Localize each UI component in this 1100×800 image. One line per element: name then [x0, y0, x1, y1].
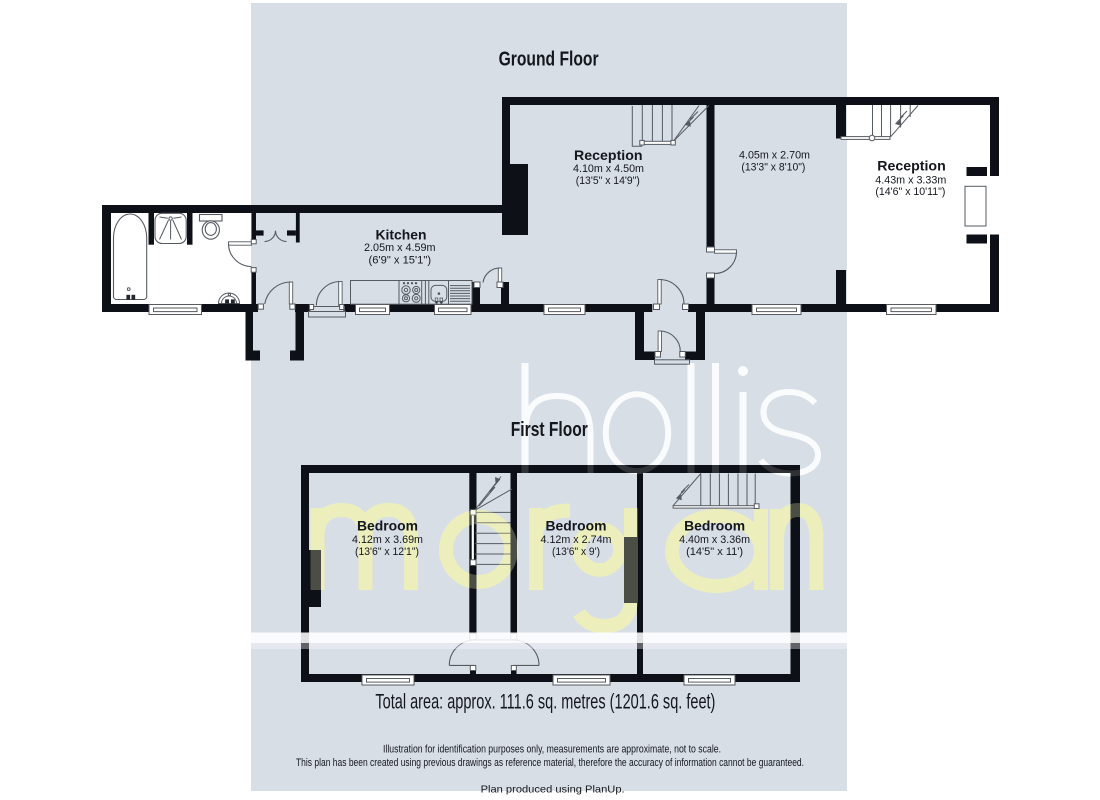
svg-text:Bedroom: Bedroom — [546, 518, 607, 534]
svg-text:(13'6" x 9'): (13'6" x 9') — [552, 546, 600, 558]
svg-text:4.43m x 3.33m: 4.43m x 3.33m — [875, 174, 946, 186]
svg-text:4.05m x 2.70m: 4.05m x 2.70m — [739, 150, 810, 162]
svg-text:(6'9" x 15'1"): (6'9" x 15'1") — [369, 255, 432, 267]
svg-text:4.12m x 3.69m: 4.12m x 3.69m — [352, 534, 423, 546]
svg-text:2.05m x 4.59m: 2.05m x 4.59m — [364, 242, 436, 254]
svg-text:(13'6" x 12'1"): (13'6" x 12'1") — [355, 546, 419, 558]
svg-text:4.10m x 4.50m: 4.10m x 4.50m — [573, 163, 644, 175]
svg-text:Reception: Reception — [574, 147, 643, 163]
svg-text:Bedroom: Bedroom — [684, 518, 745, 534]
svg-text:This plan has been created usi: This plan has been created using previou… — [296, 757, 804, 769]
svg-text:Total area: approx. 111.6 sq.: Total area: approx. 111.6 sq. metres (12… — [375, 691, 715, 714]
svg-text:(14'5" x 11'): (14'5" x 11') — [686, 546, 743, 558]
svg-text:Plan produced using PlanUp.: Plan produced using PlanUp. — [481, 784, 625, 796]
svg-text:4.12m x 2.74m: 4.12m x 2.74m — [541, 534, 612, 546]
svg-text:4.40m x 3.36m: 4.40m x 3.36m — [679, 534, 750, 546]
svg-text:(13'3" x 8'10"): (13'3" x 8'10") — [741, 162, 805, 174]
svg-text:Reception: Reception — [877, 158, 946, 174]
svg-text:Illustration for identificatio: Illustration for identification purposes… — [383, 744, 721, 756]
svg-text:(14'6" x 10'11"): (14'6" x 10'11") — [875, 186, 945, 198]
svg-text:First Floor: First Floor — [511, 419, 588, 441]
svg-text:Ground Floor: Ground Floor — [499, 49, 599, 71]
svg-text:Kitchen: Kitchen — [376, 227, 427, 243]
svg-text:Bedroom: Bedroom — [357, 518, 418, 534]
svg-text:(13'5" x 14'9"): (13'5" x 14'9") — [576, 175, 640, 187]
